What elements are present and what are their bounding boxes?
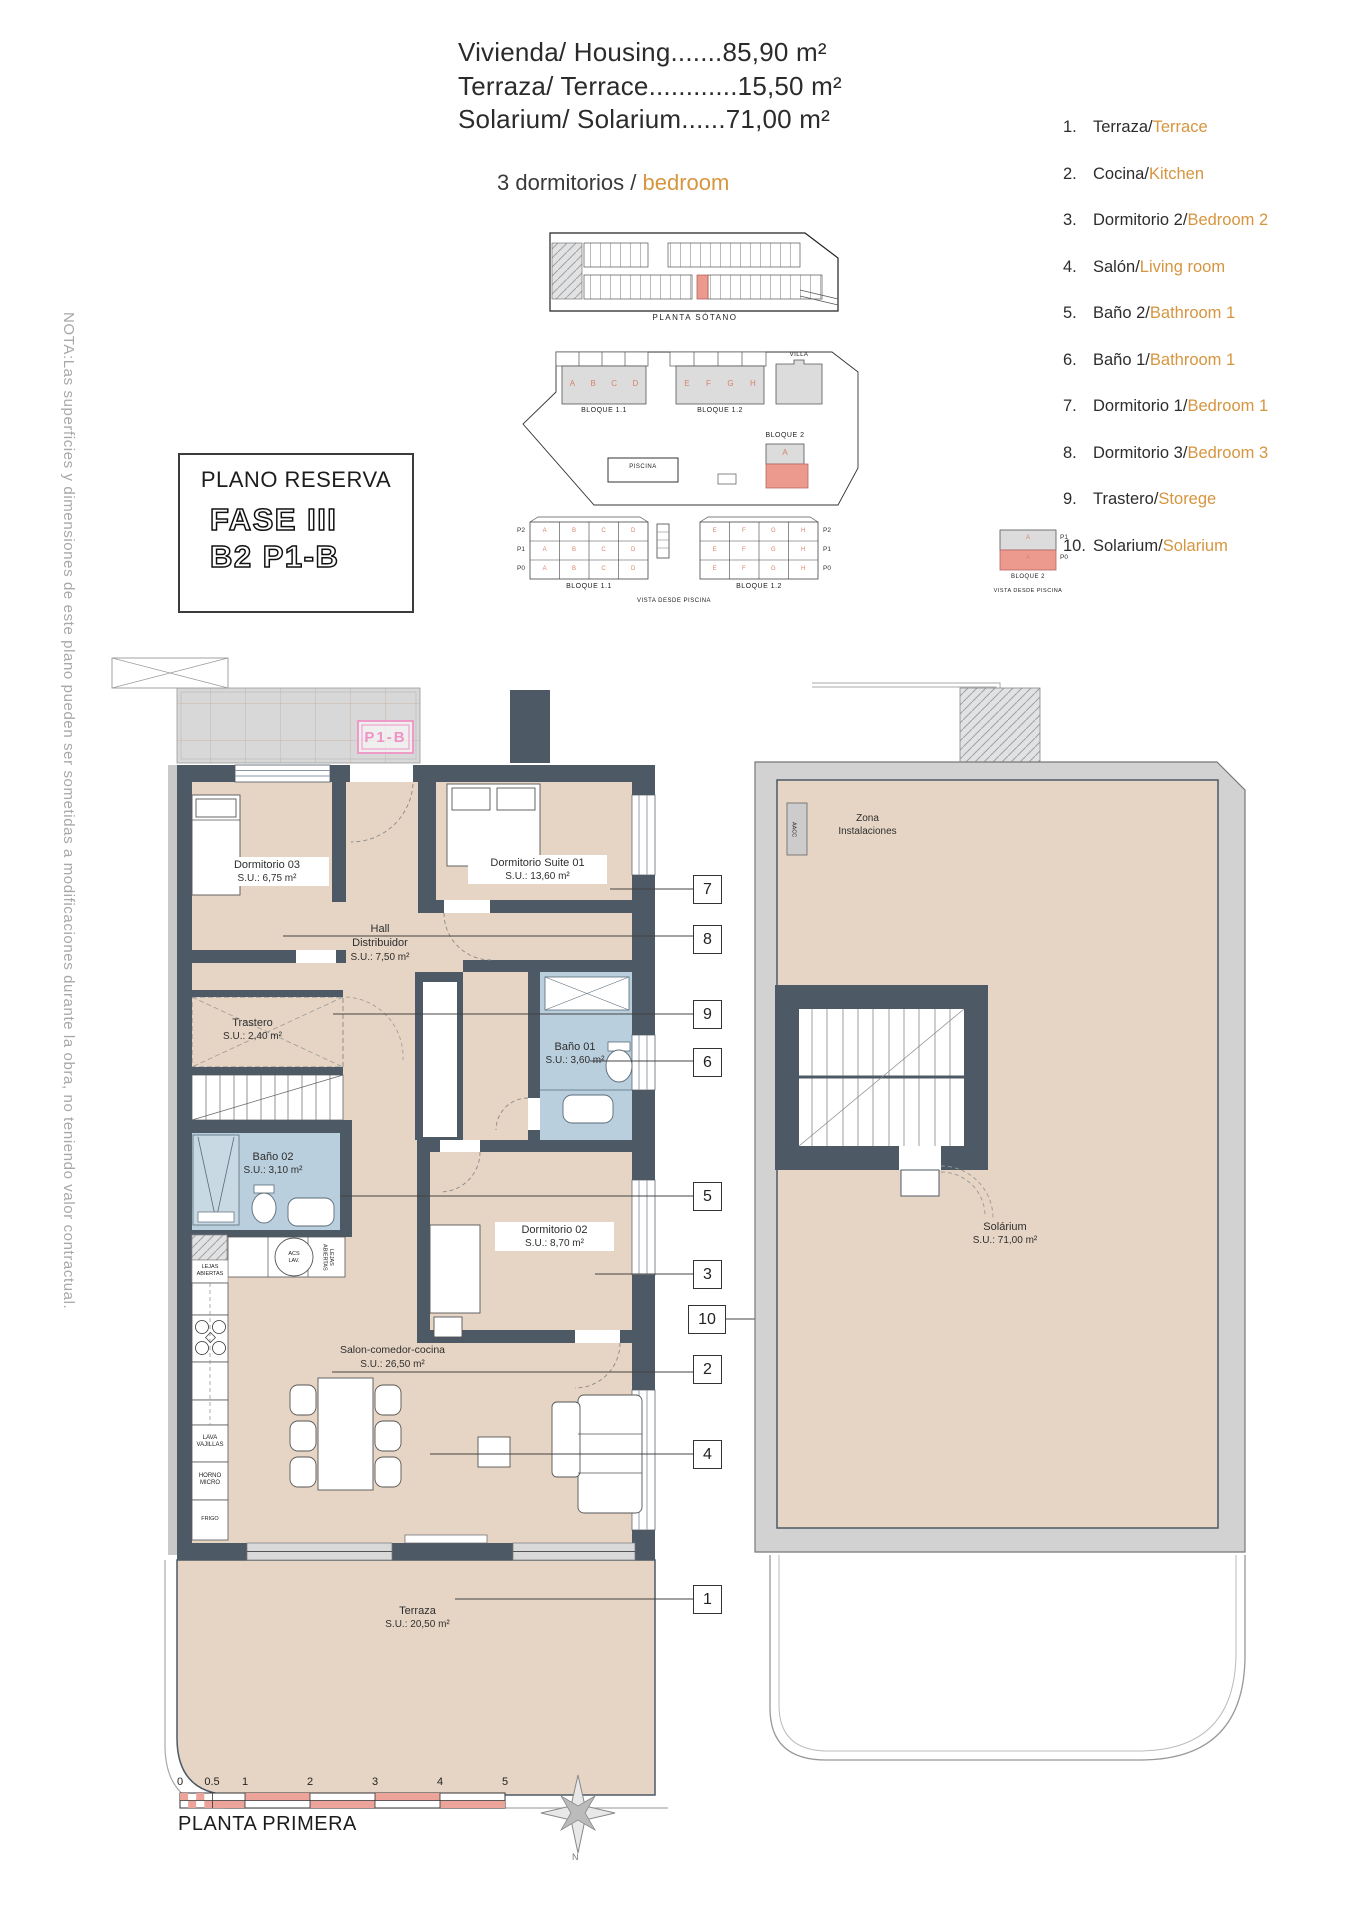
bloque2-row-p0: P0 <box>1060 554 1068 561</box>
elev-row1-right: EFGH <box>700 528 818 534</box>
unit-tag: P1-B <box>358 721 413 753</box>
legend-item-cocina: 2.Cocina / Kitchen <box>1063 165 1268 184</box>
room-label-suite01: Dormitorio Suite 01S.U.: 13,60 m² <box>468 855 607 884</box>
villa-label: VILLA <box>776 352 822 358</box>
vista-piscina-label-2: VISTA DESDE PISCINA <box>970 588 1086 594</box>
open-shelf-label: LEJAS ABIERTAS <box>193 1264 227 1277</box>
room-label-dormitorio02: Dormitorio 02S.U.: 8,70 m² <box>495 1222 614 1251</box>
plan-title: PLANO RESERVA <box>180 467 412 493</box>
room-label-terraza: TerrazaS.U.: 20,50 m² <box>355 1604 480 1631</box>
room-label-hall: HallDistribuidorS.U.: 7,50 m² <box>330 922 430 964</box>
piscina-label: PISCINA <box>608 464 678 470</box>
compass-north-label: N <box>572 1852 579 1862</box>
room-label-dormitorio03: Dormitorio 03S.U.: 6,75 m² <box>205 857 329 886</box>
bloque2-label: BLOQUE 2 <box>755 432 815 439</box>
oven-label: HORNO MICRO <box>193 1473 227 1487</box>
site-basement-diagram <box>550 233 838 311</box>
scale-5: 5 <box>502 1776 508 1788</box>
row-p1-right: P1 <box>823 546 831 553</box>
area-summary: Vivienda/ Housing.......85,90 m² Terraza… <box>458 36 842 137</box>
stairs <box>192 1075 343 1120</box>
callout-9: 9 <box>693 1000 722 1029</box>
vista-piscina-label: VISTA DESDE PISCINA <box>530 598 818 604</box>
room-label-solarium: SoláriumS.U.: 71,00 m² <box>945 1220 1065 1247</box>
legend-item-dormitorio2: 3.Dormitorio 2 / Bedroom 2 <box>1063 211 1268 230</box>
legend-item-trastero: 9.Trastero / Storege <box>1063 490 1268 509</box>
callout-6: 6 <box>693 1048 722 1077</box>
callout-2: 2 <box>693 1355 722 1384</box>
site-blocks-diagram <box>523 352 858 505</box>
reservation-title-box: PLANO RESERVA FASE III B2 P1-B <box>178 453 414 613</box>
row-p2-right: P2 <box>823 527 831 534</box>
villa-block <box>776 360 822 404</box>
callout-8: 8 <box>693 925 722 954</box>
row-p0-right: P0 <box>823 565 831 572</box>
elev-row3-left: ABCD <box>530 566 648 572</box>
row-p2-left: P2 <box>495 527 525 534</box>
row-p1-left: P1 <box>495 546 525 553</box>
scale-bar <box>180 1793 505 1808</box>
unit-code-label: B2 P1-B <box>210 538 412 575</box>
disclaimer-note: NOTA:Las superficies y dimensiones de es… <box>60 312 77 1372</box>
pergola-structure <box>112 658 228 688</box>
legend-item-salon: 4.Salón / Living room <box>1063 258 1268 277</box>
dishwasher-label: LAVA VAJILLAS <box>193 1435 227 1449</box>
elev-row1-left: ABCD <box>530 528 648 534</box>
bloque12-units: EFGH <box>676 379 764 388</box>
bloque2-elev-unit1: A <box>1000 535 1056 541</box>
bedrooms-subtitle: 3 dormitorios / bedroom <box>497 170 729 196</box>
scale-0: 0 <box>177 1776 183 1788</box>
tv-bench <box>478 1437 510 1467</box>
open-shelf-vertical-label: LEJAS ABIERTAS <box>320 1239 334 1275</box>
terrace-floor <box>177 1560 655 1795</box>
bloque2-row-p1: P1 <box>1060 534 1068 541</box>
aacc-label: AACC <box>790 808 797 852</box>
legend-item-terraza: 1.Terraza / Terrace <box>1063 118 1268 137</box>
basement-label: PLANTA SÓTANO <box>610 313 780 322</box>
elev-row2-right: EFGH <box>700 547 818 553</box>
phase-label: FASE III <box>210 501 412 538</box>
housing-area: Vivienda/ Housing.......85,90 m² <box>458 36 842 70</box>
callout-3: 3 <box>693 1260 722 1289</box>
legend-item-dormitorio3: 8.Dormitorio 3 / Bedroom 3 <box>1063 444 1268 463</box>
boiler-label: ACS LAV. <box>283 1251 305 1264</box>
callout-4: 4 <box>693 1440 722 1469</box>
room-legend: 1.Terraza / Terrace 2.Cocina / Kitchen 3… <box>1063 118 1268 583</box>
room-label-trastero: TrasteroS.U.: 2,40 m² <box>195 1016 310 1043</box>
bloque11-elev-label: BLOQUE 1.1 <box>530 583 648 590</box>
scale-4: 4 <box>437 1776 443 1788</box>
room-label-salon: Salon-comedor-cocinaS.U.: 26,50 m² <box>320 1344 465 1371</box>
elev-row3-right: EFGH <box>700 566 818 572</box>
bloque11-label: BLOQUE 1.1 <box>556 407 652 414</box>
row-p0-left: P0 <box>495 565 525 572</box>
dining-table <box>318 1378 373 1490</box>
solarium-area: Solarium/ Solarium......71,00 m² <box>458 103 842 137</box>
scale-3: 3 <box>372 1776 378 1788</box>
highlighted-parking-stall <box>697 275 708 299</box>
fridge-label: FRIGO <box>193 1516 227 1523</box>
callout-7: 7 <box>693 875 722 904</box>
room-label-bano01: Baño 01S.U.: 3,60 m² <box>525 1040 625 1067</box>
callout-5: 5 <box>693 1182 722 1211</box>
room-label-bano02: Baño 02S.U.: 3,10 m² <box>218 1150 328 1177</box>
legend-item-solarium: 10.Solarium / Solarium <box>1063 537 1268 556</box>
legend-item-bano1: 6.Baño 1 / Bathroom 1 <box>1063 351 1268 370</box>
legend-item-dormitorio1: 7.Dormitorio 1 / Bedroom 1 <box>1063 397 1268 416</box>
bloque12-label: BLOQUE 1.2 <box>672 407 768 414</box>
terrace-area: Terraza/ Terrace............15,50 m² <box>458 70 842 104</box>
floor-name: PLANTA PRIMERA <box>178 1813 357 1836</box>
room-label-zona-instalaciones: ZonaInstalaciones <box>820 812 915 838</box>
floorplan-page: Vivienda/ Housing.......85,90 m² Terraza… <box>0 0 1356 1920</box>
bloque2-unit-letter: A <box>766 448 804 457</box>
callout-10: 10 <box>688 1305 726 1334</box>
callout-1: 1 <box>693 1585 722 1614</box>
chair <box>290 1385 316 1415</box>
scale-05: 0.5 <box>204 1776 219 1788</box>
piscina-pool <box>608 458 678 482</box>
scale-1: 1 <box>242 1776 248 1788</box>
bloque12-elev-label: BLOQUE 1.2 <box>700 583 818 590</box>
elev-row2-left: ABCD <box>530 547 648 553</box>
bloque2-elev-unit2: A <box>1000 555 1056 561</box>
bloque2-elev-label: BLOQUE 2 <box>1000 574 1056 580</box>
duct-shaft <box>423 982 457 1137</box>
bloque2-highlighted-unit <box>766 464 808 488</box>
scale-2: 2 <box>307 1776 313 1788</box>
bloque11-units: ABCD <box>562 379 646 388</box>
legend-item-bano2: 5.Baño 2 / Bathroom 1 <box>1063 304 1268 323</box>
bed-d02 <box>430 1225 480 1313</box>
